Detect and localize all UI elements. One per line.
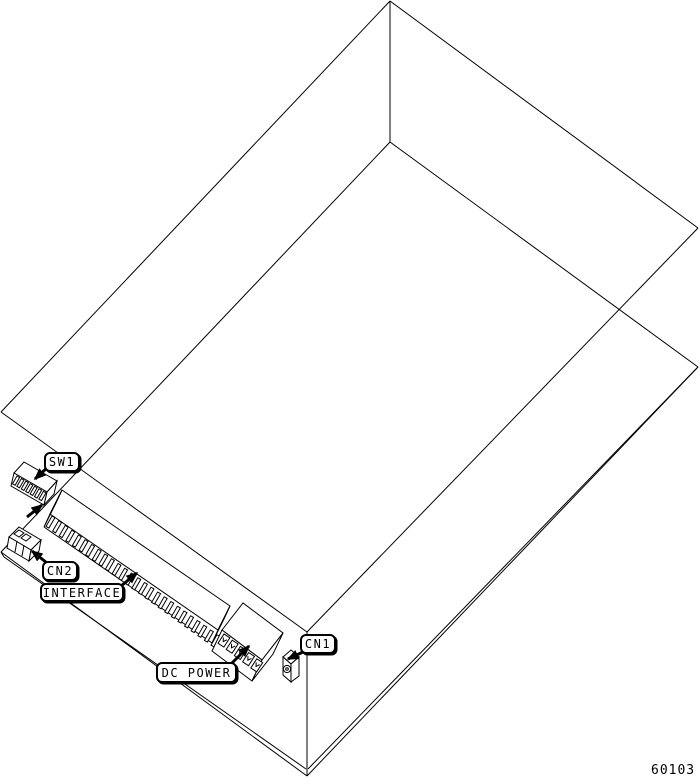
interface-callout-text: INTERFACE: [43, 586, 122, 600]
edge-bottom-front-right-inner: [308, 370, 695, 769]
edge-bottom-rear-right: [390, 142, 698, 367]
sw1-callout-text: SW1: [49, 455, 75, 469]
dc-power-callout-text: DC POWER: [162, 666, 232, 680]
cn1-callout: CN1: [300, 634, 336, 654]
edge-bottom-rear-left: [1, 142, 390, 552]
cn2-callout-text: CN2: [47, 564, 73, 578]
cn2-callout: CN2: [42, 561, 78, 581]
cn1-jack-pin: [286, 668, 289, 671]
edge-top-rear-left: [1, 1, 390, 412]
interface-callout: INTERFACE: [40, 583, 124, 602]
isometric-line-drawing: [0, 0, 700, 784]
dc-power-callout: DC POWER: [156, 662, 237, 683]
cn1-callout-text: CN1: [305, 637, 331, 651]
drawing-number: 60103: [651, 763, 695, 778]
sw1-callout: SW1: [44, 452, 80, 472]
enclosure-wireframe: [1, 1, 698, 776]
interface-top-face: [50, 490, 230, 630]
figure-canvas: SW1 CN2 INTERFACE DC POWER CN1 60103: [0, 0, 700, 784]
edge-top-rear-right: [390, 1, 698, 228]
edge-bottom-front-right-join: [695, 367, 698, 370]
